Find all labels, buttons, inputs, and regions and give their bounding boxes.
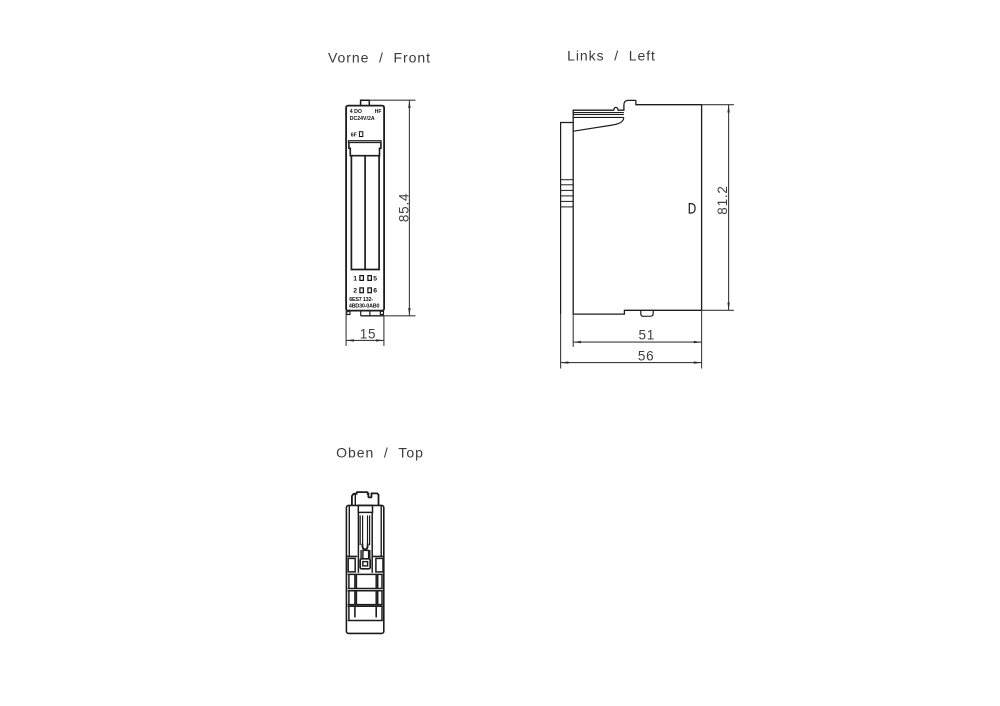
svg-text:Vorne / Front: Vorne / Front: [328, 50, 431, 66]
svg-text:85.4: 85.4: [396, 193, 411, 222]
svg-text:HF: HF: [375, 109, 382, 115]
svg-text:6: 6: [373, 288, 377, 295]
svg-text:4BD30-0AB0: 4BD30-0AB0: [349, 303, 380, 309]
svg-text:51: 51: [638, 328, 655, 343]
svg-text:2: 2: [353, 288, 357, 295]
svg-text:6ES7 132-: 6ES7 132-: [349, 297, 373, 303]
svg-text:56: 56: [638, 348, 655, 363]
svg-text:5: 5: [373, 275, 377, 282]
svg-text:81.2: 81.2: [715, 185, 730, 214]
svg-text:Oben / Top: Oben / Top: [336, 444, 424, 460]
svg-text:1: 1: [353, 275, 357, 282]
svg-text:15: 15: [360, 327, 377, 342]
svg-text:4 DO: 4 DO: [350, 109, 362, 115]
svg-text:6F: 6F: [351, 132, 357, 138]
svg-text:Links / Left: Links / Left: [567, 48, 656, 64]
svg-text:DC24V/2A: DC24V/2A: [350, 116, 375, 122]
